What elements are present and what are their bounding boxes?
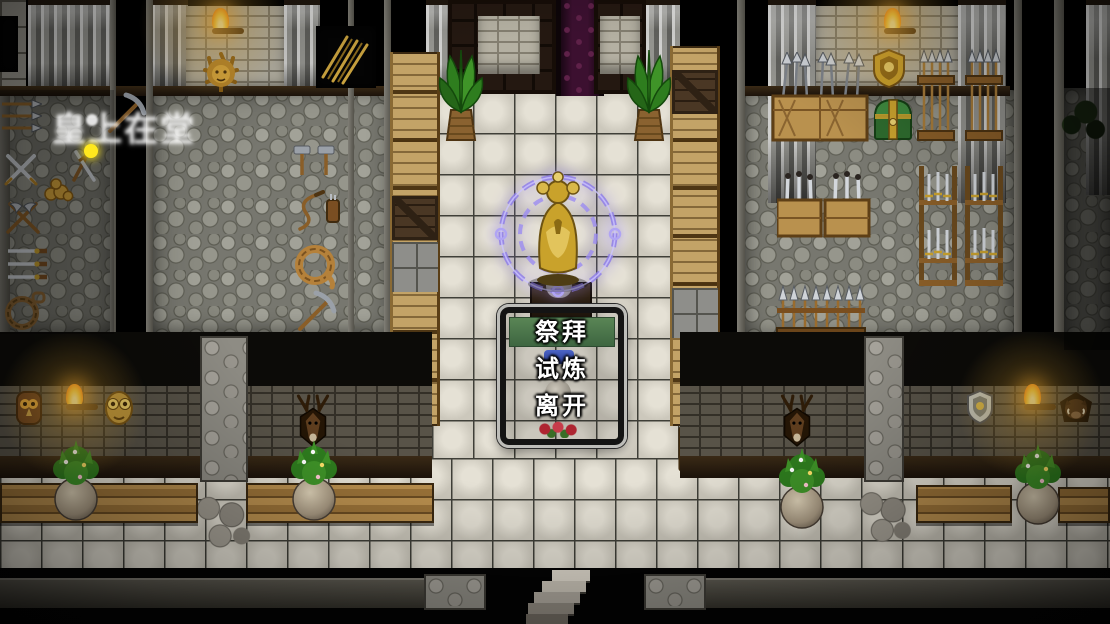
torch-icon <box>884 8 916 34</box>
brick-inset-left <box>478 16 540 74</box>
sword-stand-rack <box>916 164 960 288</box>
potted-plant-round <box>288 438 340 522</box>
choice-window: 祭拜 试炼 离开 <box>497 304 627 448</box>
spear-low-rack <box>774 284 868 338</box>
crate-dark-left <box>392 196 438 240</box>
pillar-strip-7 <box>1054 0 1064 352</box>
arrow-stand-rack <box>962 48 1006 143</box>
pillar-strip-5 <box>737 0 745 340</box>
stone-blocks-right <box>672 288 718 338</box>
watermark-dot-yellow <box>84 144 98 158</box>
torch-icon <box>212 8 244 34</box>
potted-plant-round <box>1012 442 1064 526</box>
quiver-icon <box>324 192 342 224</box>
curtain-top-left-2 <box>152 0 188 93</box>
lion-head-icon <box>203 52 239 92</box>
rubble-pile-left <box>194 486 252 550</box>
bottom-corner-left <box>424 574 486 610</box>
menu-item-trial[interactable]: 试炼 <box>509 354 615 384</box>
torch-icon <box>1024 384 1056 410</box>
hay-bundle-icon <box>317 27 375 87</box>
hay-alcove <box>316 26 376 88</box>
pickaxe-icon <box>290 290 338 332</box>
watermark-dot-white <box>86 114 98 126</box>
wooden-bench <box>246 483 434 523</box>
stairs-icon[interactable] <box>526 566 592 624</box>
hammer-display-icon <box>292 142 336 178</box>
bottom-corner-right <box>644 574 706 610</box>
potted-plant-round <box>50 438 102 522</box>
bottom-ledge-left <box>0 578 424 608</box>
arrow-stand-rack <box>914 48 958 143</box>
bottom-ledge-right <box>688 578 1110 608</box>
rubble-pile-right <box>858 482 912 544</box>
watermark-text: 皇上在堂 <box>52 102 196 151</box>
whip-icon <box>294 190 326 232</box>
silver-shield-icon <box>966 390 994 424</box>
deer-trophy-icon <box>780 394 814 448</box>
crate-dark-right <box>672 70 718 114</box>
potted-plant-tall-left <box>438 46 484 144</box>
treasure-chest-icon[interactable] <box>872 96 914 142</box>
sword-stand-rack <box>962 164 1006 288</box>
potted-plant-round <box>776 446 828 530</box>
spear-crate-rack <box>770 52 870 144</box>
room-shadow <box>1064 88 1110 350</box>
watermark: 皇上在堂 <box>42 88 242 172</box>
curtain-top-left-3 <box>284 0 320 93</box>
wooden-bench <box>916 485 1012 523</box>
owl-mask-icon <box>14 390 44 426</box>
game-viewport: 祭拜 试炼 离开 皇上在堂 <box>0 0 1110 624</box>
curtain-top-left-1 <box>28 0 110 93</box>
wooden-bench <box>1058 487 1110 523</box>
stone-pillar-right <box>864 336 904 482</box>
left-edge-alcove <box>0 16 18 72</box>
torch-icon <box>66 384 98 410</box>
gold-shield-icon <box>872 48 906 88</box>
rope-coil-icon <box>290 240 340 290</box>
stone-blocks-left <box>392 242 438 292</box>
sword-crate-rack <box>776 170 872 238</box>
goddess-statue-icon[interactable] <box>524 170 592 288</box>
potted-plant-tall-right <box>626 46 672 144</box>
stone-pillar-left <box>200 336 248 482</box>
gold-mask-icon <box>104 390 134 426</box>
pillar-strip-6 <box>1014 0 1022 352</box>
boar-trophy-icon <box>1058 390 1094 426</box>
menu-item-worship[interactable]: 祭拜 <box>509 317 615 347</box>
menu-item-leave[interactable]: 离开 <box>509 391 615 421</box>
